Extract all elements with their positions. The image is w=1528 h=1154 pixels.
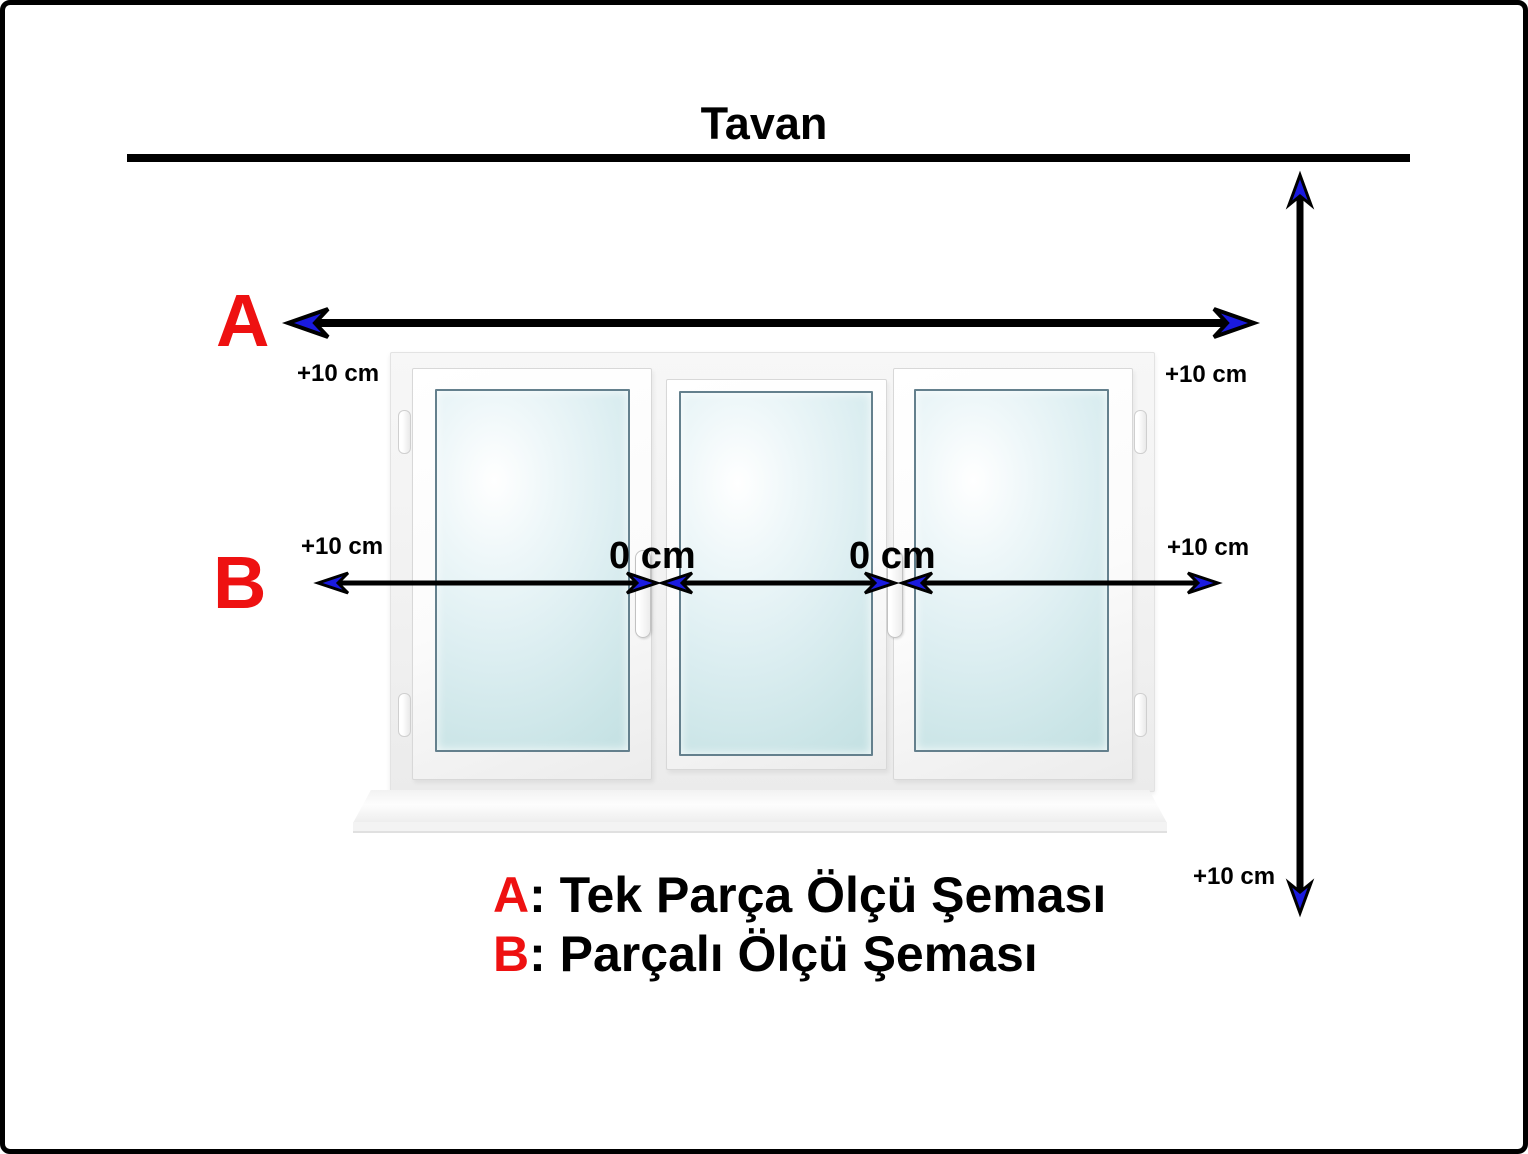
legend-item-b-key: B <box>493 926 529 982</box>
legend-item-a-text: : Tek Parça Ölçü Şeması <box>529 867 1106 923</box>
window-sill-base <box>353 822 1167 833</box>
offset-label-a-right: +10 cm <box>1165 362 1247 388</box>
marker-a-label: A <box>216 284 269 358</box>
window-sill <box>353 790 1167 823</box>
page-title: Tavan <box>5 101 1523 146</box>
legend-item-b: B: Parçalı Ölçü Şeması <box>493 925 1106 984</box>
window-hinge-top-left <box>398 410 411 454</box>
offset-label-b-left: +10 cm <box>301 534 383 560</box>
offset-label-height-bottom: +10 cm <box>1193 864 1275 890</box>
width-arrow-a <box>283 299 1259 347</box>
gap-label-right: 0 cm <box>849 536 936 578</box>
window-hinge-top-right <box>1134 410 1147 454</box>
marker-b-label: B <box>213 546 266 620</box>
legend-item-a: A: Tek Parça Ölçü Şeması <box>493 866 1106 925</box>
offset-label-a-left: +10 cm <box>297 361 379 387</box>
legend: A: Tek Parça Ölçü Şeması B: Parçalı Ölçü… <box>493 866 1106 984</box>
window-hinge-bottom-right <box>1134 693 1147 737</box>
gap-label-left: 0 cm <box>609 536 696 578</box>
window-hinge-bottom-left <box>398 693 411 737</box>
legend-item-a-key: A <box>493 867 529 923</box>
ceiling-line <box>127 154 1410 162</box>
offset-label-b-right: +10 cm <box>1167 535 1249 561</box>
legend-item-b-text: : Parçalı Ölçü Şeması <box>529 926 1038 982</box>
width-arrow-b-segments <box>300 563 1240 603</box>
height-arrow <box>1277 167 1323 921</box>
measurement-diagram: Tavan A B <box>0 0 1528 1154</box>
